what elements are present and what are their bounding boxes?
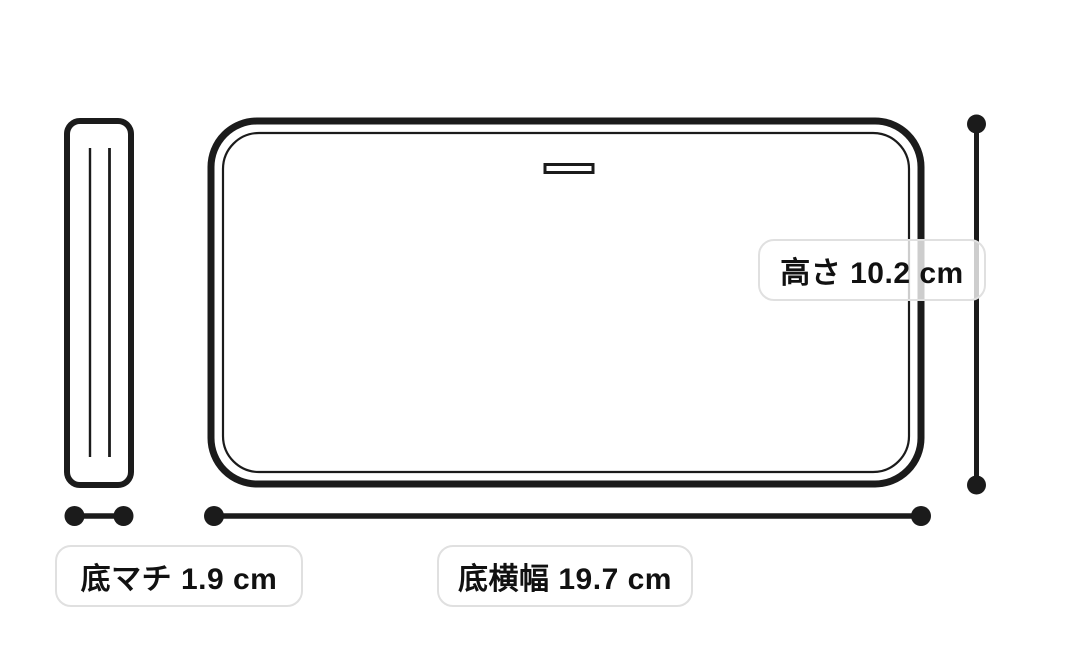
side-view-outline [67,121,131,485]
endpoint-dot [967,115,986,134]
height-dimension-line [967,115,986,495]
bottom-width-dimension-line [204,506,931,526]
side-view [67,121,131,485]
bottom-gusset-dimension-line [65,506,134,526]
endpoint-dot [204,506,224,526]
endpoint-dot [911,506,931,526]
dimension-diagram: 高さ 10.2 cm 底横幅 19.7 cm 底マチ 1.9 cm [0,0,1080,665]
endpoint-dot [114,506,134,526]
bottom-width-dimension-label: 底横幅 19.7 cm [437,545,693,607]
front-view-outline [211,121,921,484]
height-dimension-label: 高さ 10.2 cm [758,239,986,301]
zipper-slit [545,165,593,173]
endpoint-dot [65,506,85,526]
bottom-gusset-dimension-label: 底マチ 1.9 cm [55,545,303,607]
front-view [211,121,921,484]
endpoint-dot [967,476,986,495]
